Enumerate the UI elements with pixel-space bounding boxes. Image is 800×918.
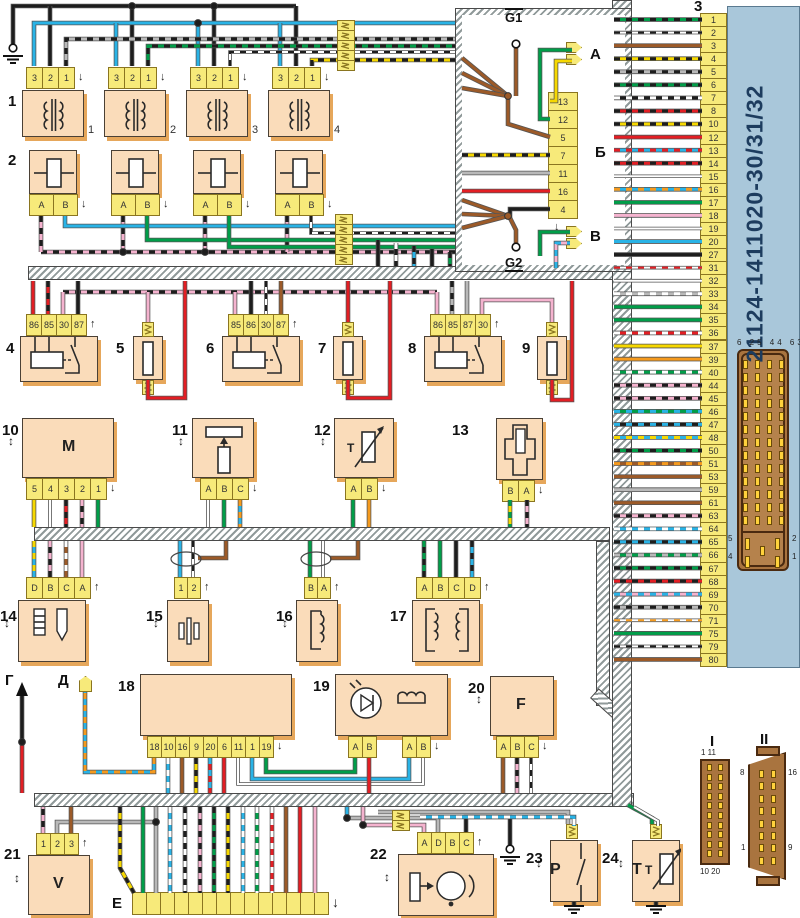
oxygen-sensor-14-pin-B: B: [42, 577, 59, 599]
ecu-plug-pin: [743, 464, 748, 473]
g2-label: G2: [505, 255, 522, 270]
throttle-pos-11-pin-B: B: [216, 478, 233, 500]
ecu-plug-pin: [767, 477, 772, 486]
throttle-pos-11-pin-A: A: [200, 478, 217, 500]
panel-18-pin-20: 20: [203, 736, 218, 758]
movement-arrow-icon: ↕: [4, 616, 10, 630]
panel-18-pin-18: 18: [147, 736, 162, 758]
ecu-plug-pin: [743, 438, 748, 447]
throttle-pos-11-symbol-icon: [193, 419, 255, 479]
ecu-plug-pin: [767, 412, 772, 421]
ignition-coil-4-pin-1: 1: [304, 67, 321, 89]
ecu-pin-6: 6: [700, 78, 727, 92]
component-4-number: 4: [6, 340, 14, 357]
d-label: Д: [58, 672, 69, 689]
injector-1-symbol-icon: [30, 151, 78, 195]
connector-i-pin: [718, 774, 723, 781]
plug-corner-1: 1: [792, 552, 796, 561]
relay-4-pin-30: 30: [56, 314, 72, 336]
ecu-pin-1: 1: [700, 13, 727, 27]
ecu-pin-31: 31: [700, 261, 727, 275]
ignition-coil-2-pin-2: 2: [124, 67, 141, 89]
connector-i-pin: [707, 831, 712, 838]
ecu-plug-divider: [741, 531, 785, 533]
connector-ii-pin: [771, 807, 776, 815]
component-box-injector-3: [193, 150, 241, 194]
ignition-coil-2-pin-3: 3: [108, 67, 125, 89]
component-box-lamp-relay-19: [335, 674, 448, 736]
g-label: Г: [5, 672, 14, 689]
harness-arrow-icon: ↑: [484, 581, 490, 593]
connector-ii-body: [748, 752, 786, 880]
e-strip-cell: [258, 892, 273, 915]
movement-arrow-icon: ↕: [536, 856, 542, 870]
ecu-plug-pin: [743, 516, 748, 525]
panel-18-pin-19: 19: [259, 736, 274, 758]
knock-sensor-15-pin-1: 1: [174, 577, 188, 599]
sensor-24-terminal: [650, 824, 662, 839]
ecu-pin-67: 67: [700, 562, 727, 576]
svg-text:T: T: [347, 441, 355, 455]
ecu-plug-pin: [745, 556, 750, 568]
harness-arrow-icon: ↓: [110, 482, 116, 494]
knock-sensor-15-symbol-icon: [168, 601, 210, 663]
component-6-number: 6: [206, 340, 214, 357]
bus-middle-drop: [596, 541, 610, 706]
component-box-fuse-7: [333, 336, 363, 380]
ignition-coil-4-unit-number: 4: [334, 124, 340, 136]
b-connector-pin-4: 4: [548, 200, 578, 219]
movement-arrow-icon: ↕: [282, 616, 288, 630]
oxygen-sensor-14-pin-D: D: [26, 577, 43, 599]
e-strip-cell: [216, 892, 231, 915]
ecu-pin-47: 47: [700, 418, 727, 432]
ecu-pin-71: 71: [700, 614, 727, 628]
harness-arrow-icon: ↑: [82, 837, 88, 849]
connector-ii-tab-bottom: [756, 876, 780, 886]
connector-ii-pin: [771, 782, 776, 790]
injector-4-symbol-icon: [276, 151, 324, 195]
ecu-pin-39: 39: [700, 353, 727, 367]
g2-bar: [505, 270, 523, 272]
ignition-coil-1-pin-3: 3: [26, 67, 43, 89]
component-box-fuse-5: [133, 336, 163, 380]
temp-sensor-12-pin-A: A: [345, 478, 362, 500]
injector-1-pin-B: B: [53, 194, 78, 216]
b-connector-pin-12: 12: [548, 110, 578, 129]
connector-ii-tl: 8: [740, 768, 744, 777]
ecu-plug-pin: [745, 538, 750, 550]
ecu-plug-pin: [767, 451, 772, 460]
ecu-plug-pin: [767, 503, 772, 512]
e-harness-arrow-icon: ↓: [332, 894, 339, 910]
injector-4-pin-A: A: [275, 194, 300, 216]
fuse-7-terminal: [342, 322, 354, 337]
idle-valve-10-pin-1: 1: [90, 478, 107, 500]
ecu-pin-13: 13: [700, 144, 727, 158]
ecu-pin-4: 4: [700, 52, 727, 66]
e-strip-cell: [244, 892, 259, 915]
connector-ii-pin: [759, 820, 764, 828]
module-17-pin-D: D: [464, 577, 481, 599]
movement-arrow-icon: ↕: [8, 434, 14, 448]
ignition-coil-3-unit-number: 3: [252, 124, 258, 136]
ignition-coil-2-pin-1: 1: [140, 67, 157, 89]
ecu-plug-pin: [760, 546, 765, 556]
ecu-pin-46: 46: [700, 405, 727, 419]
relay-6-pin-30: 30: [258, 314, 274, 336]
harness-arrow-icon: ↓: [81, 198, 87, 210]
connector-i-pin: [707, 812, 712, 819]
movement-arrow-icon: ↕: [384, 870, 390, 884]
harness-arrow-icon: ↓: [242, 71, 248, 83]
connector-ii-pin: [759, 844, 764, 852]
connector-i-pin: [718, 822, 723, 829]
component-box-injector-1: [29, 150, 77, 194]
temp-sensor-12-symbol-icon: T: [335, 419, 395, 479]
harness-arrow-icon: ↑: [334, 581, 340, 593]
component-box-ignition-coil-4: [268, 90, 330, 137]
ecu-pin-18: 18: [700, 209, 727, 223]
connector-i-bottom-label: 10 20: [700, 867, 720, 876]
e-strip-cell: [230, 892, 245, 915]
connector-i-pin: [718, 793, 723, 800]
harness-arrow-icon: ↑: [494, 318, 500, 330]
ecu-plug-pin: [779, 464, 784, 473]
panel-18-pin-11: 11: [231, 736, 246, 758]
ignition-coil-3-pin-1: 1: [222, 67, 239, 89]
ecu-plug-pin: [767, 490, 772, 499]
connector-ii-pin: [759, 782, 764, 790]
harness-arrow-icon: ↑: [477, 836, 483, 848]
module-17-pin-A: A: [416, 577, 433, 599]
component-2-number: 2: [8, 152, 16, 169]
connector-ii-pin: [759, 807, 764, 815]
injector-4-pin-B: B: [299, 194, 324, 216]
ecu-plug-pin: [755, 386, 760, 395]
ecu-plug-pin: [779, 451, 784, 460]
connector-i-pin: [707, 764, 712, 771]
bus-middle: [34, 527, 610, 541]
ecu-plug-pin: [743, 477, 748, 486]
ecu-plug-pin: [779, 373, 784, 382]
component-24-number: 24: [602, 850, 619, 867]
idle-valve-10-letter: M: [62, 438, 75, 456]
harness-arrow-icon: ↓: [324, 71, 330, 83]
component-21-number: 21: [4, 846, 21, 863]
ecu-plug-pin: [743, 386, 748, 395]
svg-text:T: T: [645, 863, 653, 877]
module-17-pin-B: B: [432, 577, 449, 599]
connector-i-pin: [718, 850, 723, 857]
component-box-module-17: [412, 600, 480, 662]
ignition-coil-1-pin-1: 1: [58, 67, 75, 89]
ecu-plug-pin: [743, 451, 748, 460]
fuse-5-symbol-icon: [134, 337, 164, 381]
harness-arrow-icon: ↑: [204, 581, 210, 593]
relay-6-symbol-icon: [223, 337, 301, 383]
ignition-coil-3-pin-3: 3: [190, 67, 207, 89]
component-box-injector-2: [111, 150, 159, 194]
ecu-pin-36: 36: [700, 326, 727, 340]
relay-6-pin-86: 86: [243, 314, 259, 336]
ecu-plug-pin: [767, 425, 772, 434]
generator-22-pin-A: A: [417, 832, 432, 854]
connector-ii-tr: 16: [788, 768, 797, 777]
ecu-plug-pin: [775, 538, 780, 550]
lamp-relay-19-pin-A: A: [402, 736, 417, 758]
ecu-plug-pin: [755, 399, 760, 408]
e-strip-cell: [146, 892, 161, 915]
ecu-plug-pin: [755, 360, 760, 369]
conn-a-label: А: [590, 46, 601, 63]
connector-ii-label: II: [760, 731, 768, 748]
idle-valve-10-pin-2: 2: [74, 478, 91, 500]
component-box-oxygen-sensor-14: [18, 600, 86, 662]
connector-i-top-label: 1 11: [701, 748, 716, 757]
conn-v-label: В: [590, 228, 601, 245]
relay-6-pin-85: 85: [228, 314, 244, 336]
switch-23-terminal: [566, 824, 578, 839]
ecu-pin-20: 20: [700, 235, 727, 249]
crank-sensor-16-pin-A: A: [317, 577, 331, 599]
component-19-number: 19: [313, 678, 330, 695]
b-connector-pin-16: 16: [548, 182, 578, 201]
e-strip-cell: [314, 892, 329, 915]
injector-1-pin-A: A: [29, 194, 54, 216]
ecu-pin-14: 14: [700, 157, 727, 171]
ecu-pin-40: 40: [700, 366, 727, 380]
component-box-relay-8: [424, 336, 502, 382]
panel-18-pin-9: 9: [189, 736, 204, 758]
relay-4-pin-86: 86: [26, 314, 42, 336]
ecu-pin-80: 80: [700, 653, 727, 667]
ecu-pin-34: 34: [700, 300, 727, 314]
harness-arrow-icon: ↓: [542, 740, 548, 752]
b-connector-pin-5: 5: [548, 128, 578, 147]
connector-i-pin: [707, 793, 712, 800]
generator-22-pin-D: D: [431, 832, 446, 854]
connector-ii-pin: [759, 857, 764, 865]
ecu-pin-15: 15: [700, 170, 727, 184]
harness-arrow-icon: ↑: [94, 581, 100, 593]
ecu-pin-27: 27: [700, 248, 727, 262]
lamp-relay-19-symbol-icon: [336, 675, 449, 737]
component-box-injector-4: [275, 150, 323, 194]
fuse-7-terminal: [342, 380, 354, 395]
ecu-pin-75: 75: [700, 627, 727, 641]
speed-sensor-21-pin-2: 2: [50, 833, 65, 855]
ignition-coil-4-symbol-icon: [269, 91, 331, 138]
connector-ii-br: 9: [788, 843, 792, 852]
ecu-pin-32: 32: [700, 274, 727, 288]
ecu-plug-pin: [779, 425, 784, 434]
connector-i-pin: [718, 812, 723, 819]
ecu-plug-pin: [755, 451, 760, 460]
injector-2-symbol-icon: [112, 151, 160, 195]
component-box-panel-18: [140, 674, 292, 736]
conn-b-label: Б: [595, 144, 606, 161]
connector-i-pin: [707, 850, 712, 857]
ecu-harness-label: 3: [694, 0, 702, 15]
ecu-pin-48: 48: [700, 431, 727, 445]
b-connector-pin-11: 11: [548, 164, 578, 183]
relay-8-pin-30: 30: [475, 314, 491, 336]
ecu-plug-pin: [755, 438, 760, 447]
fuse-9-symbol-icon: [538, 337, 568, 381]
speed-sensor-21-letter: V: [53, 875, 64, 893]
connector-i-pin: [707, 774, 712, 781]
relay-4-symbol-icon: [21, 337, 99, 383]
b-connector-pin-7: 7: [548, 146, 578, 165]
ecu-plug-pin: [767, 438, 772, 447]
connector-ii-bl: 1: [741, 843, 745, 852]
fuse-7-symbol-icon: [334, 337, 364, 381]
ecu-pin-69: 69: [700, 588, 727, 602]
connector-ii-pin: [771, 857, 776, 865]
ecu-pin-12: 12: [700, 131, 727, 145]
crank-sensor-16-pin-B: B: [304, 577, 318, 599]
ecu-plug-pin: [743, 503, 748, 512]
speed-sensor-21-pin-1: 1: [36, 833, 51, 855]
plug-corner-4: 4: [728, 552, 732, 561]
speed-sensor-21-pin-3: 3: [64, 833, 79, 855]
harness-arrow-icon: ↑: [90, 318, 96, 330]
component-box-throttle-pos-11: [192, 418, 254, 478]
connector-i-pin: [718, 783, 723, 790]
component-1-number: 1: [8, 93, 16, 110]
connector-i-pin: [707, 841, 712, 848]
ecu-pin-45: 45: [700, 392, 727, 406]
oxygen-sensor-14-pin-A: A: [74, 577, 91, 599]
module-17-symbol-icon: [413, 601, 481, 663]
harness-arrow-icon: ↓: [78, 71, 84, 83]
module-17-pin-C: C: [448, 577, 465, 599]
fuse-5-terminal: [142, 322, 154, 337]
ecu-plug-pin: [767, 373, 772, 382]
component-17-number: 17: [390, 608, 407, 625]
relay-8-pin-87: 87: [460, 314, 476, 336]
ecu-plug-pin: [779, 490, 784, 499]
component-box-sensor-13: [496, 418, 543, 480]
ecu-pin-68: 68: [700, 575, 727, 589]
connector-i-pin: [707, 783, 712, 790]
component-box-fuse-9: [537, 336, 567, 380]
component-13-number: 13: [452, 422, 469, 439]
ecu-pin-59: 59: [700, 483, 727, 497]
component-8-number: 8: [408, 340, 416, 357]
grommet-cell: [337, 60, 355, 71]
ecu-pin-44: 44: [700, 379, 727, 393]
component-5-number: 5: [116, 340, 124, 357]
movement-arrow-icon: ↕: [476, 692, 482, 706]
harness-arrow-icon: ↓: [163, 198, 169, 210]
component-22-number: 22: [370, 846, 387, 863]
component-box-relay-6: [222, 336, 300, 382]
ecu-pin-51: 51: [700, 457, 727, 471]
ecu-plug-pin: [755, 425, 760, 434]
knock-sensor-15-pin-2: 2: [187, 577, 201, 599]
movement-arrow-icon: ↕: [618, 856, 624, 870]
e-strip-cell: [160, 892, 175, 915]
ecu-pin-64: 64: [700, 522, 727, 536]
connector-ii-pin: [771, 844, 776, 852]
injector-3-symbol-icon: [194, 151, 242, 195]
relay-4-pin-87: 87: [71, 314, 87, 336]
ecu-plug-pin: [743, 412, 748, 421]
ecu-pin-37: 37: [700, 340, 727, 354]
connector-ii-pin: [771, 820, 776, 828]
ecu-pin-33: 33: [700, 287, 727, 301]
ecu-plug-pin: [755, 464, 760, 473]
ecu-pin-3: 3: [700, 39, 727, 53]
lamp-relay-19-pin-B: B: [416, 736, 431, 758]
fuel-module-20-pin-A: A: [496, 736, 511, 758]
ecu-plug-pin: [767, 360, 772, 369]
connector-ii-pin: [771, 832, 776, 840]
e-strip-cell: [202, 892, 217, 915]
sensor-13-pin-A: A: [518, 480, 535, 502]
component-18-number: 18: [118, 678, 135, 695]
wiring-diagram-stage: G1 G2 А Б В Г Д Е ↓ 3 21124-1411020-30/3…: [0, 0, 800, 918]
component-box-ignition-coil-3: [186, 90, 248, 137]
ecu-plug-pin: [779, 477, 784, 486]
harness-arrow-icon: ↓: [252, 482, 258, 494]
temp-sensor-12-pin-B: B: [361, 478, 378, 500]
switch-23-letter: Р: [550, 861, 561, 879]
lamp-relay-19-pin-A: A: [348, 736, 363, 758]
idle-valve-10-pin-4: 4: [42, 478, 59, 500]
injector-2-pin-A: A: [111, 194, 136, 216]
grommet-cell: [335, 254, 353, 265]
ecu-pin-61: 61: [700, 496, 727, 510]
ecu-pin-53: 53: [700, 470, 727, 484]
injector-3-pin-A: A: [193, 194, 218, 216]
panel-18-pin-1: 1: [245, 736, 260, 758]
ecu-plug-pin: [743, 490, 748, 499]
b-connector-pin-13: 13: [548, 92, 578, 111]
g1-label: G1: [505, 10, 522, 25]
oxygen-sensor-14-symbol-icon: [19, 601, 87, 663]
ecu-plug-pin: [755, 503, 760, 512]
e-strip-cell: [286, 892, 301, 915]
generator-22-symbol-icon: [399, 855, 495, 917]
component-box-crank-sensor-16: [296, 600, 338, 662]
relay-8-symbol-icon: [425, 337, 503, 383]
plug-corner-5: 5: [728, 534, 732, 543]
component-7-number: 7: [318, 340, 326, 357]
relay-8-pin-85: 85: [445, 314, 461, 336]
ecu-plug-pin: [755, 516, 760, 525]
idle-valve-10-pin-3: 3: [58, 478, 75, 500]
ecu-pin-7: 7: [700, 91, 727, 105]
connector-i-pin: [718, 764, 723, 771]
fuel-module-20-pin-C: C: [524, 736, 539, 758]
panel-18-pin-10: 10: [161, 736, 176, 758]
ecu-pin-65: 65: [700, 535, 727, 549]
oxygen-sensor-14-pin-C: C: [58, 577, 75, 599]
plug-header-label: 6 25 44 63: [737, 338, 800, 347]
ignition-coil-2-unit-number: 2: [170, 124, 176, 136]
sensor-13-pin-B: B: [502, 480, 519, 502]
ecu-plug-pin: [775, 556, 780, 568]
harness-arrow-icon: ↓: [538, 484, 544, 496]
ecu-plug-pin: [755, 477, 760, 486]
e-strip-cell: [300, 892, 315, 915]
component-box-temp-sensor-12: T: [334, 418, 394, 478]
connector-ii-pin: [771, 770, 776, 778]
connector-i-body: [700, 759, 730, 865]
